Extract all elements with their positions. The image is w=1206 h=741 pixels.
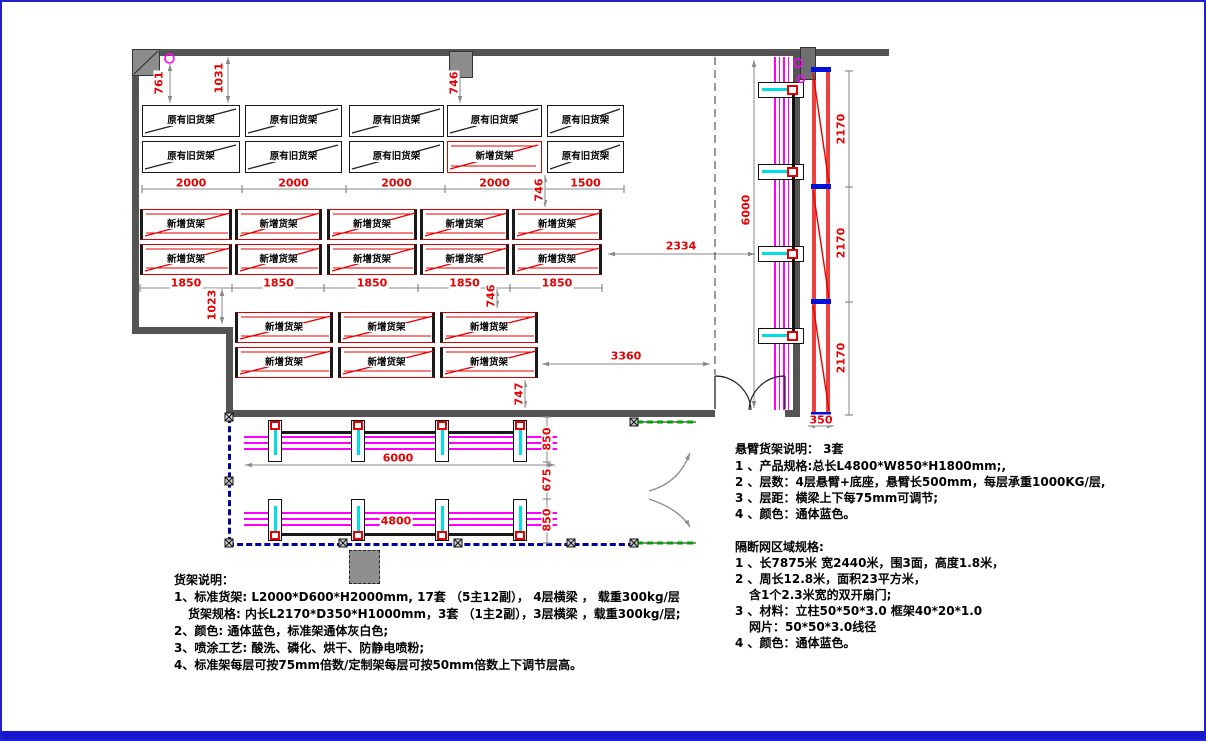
- rack-cell-label: 原有旧货架: [269, 116, 319, 126]
- dim-label: 761: [154, 71, 165, 96]
- post-cyan-line: [357, 506, 360, 532]
- dim-label: 746: [486, 284, 497, 309]
- dim-label: 2000: [175, 178, 208, 189]
- dim-label: 2170: [836, 227, 847, 260]
- cantilever-beam: [275, 533, 520, 536]
- rack-cell-label: 原有旧货架: [372, 152, 422, 162]
- side-rack-cap: [811, 184, 831, 189]
- rack-cell-label: 原有旧货架: [470, 116, 520, 126]
- rack-cell: 新增货架: [235, 209, 322, 240]
- bracket-post-square: [787, 331, 798, 341]
- rack-cell: 原有旧货架: [547, 141, 624, 173]
- wall: [132, 49, 889, 56]
- bracket-cyan-line: [762, 88, 789, 91]
- dim-label: 1850: [356, 278, 389, 289]
- post-cyan-line: [274, 427, 277, 455]
- rack-cell-label: 新增货架: [537, 220, 577, 230]
- post-red-square: [515, 531, 525, 540]
- dim-label: 850: [542, 508, 553, 533]
- rack-cell: 原有旧货架: [245, 105, 342, 137]
- post-cyan-line: [441, 506, 444, 532]
- dim-label: 2000: [478, 178, 511, 189]
- side-rack-band: [812, 69, 816, 417]
- dim-label: 1031: [214, 62, 225, 95]
- rack-cell-label: 新增货架: [474, 152, 514, 162]
- dim-label: 746: [534, 178, 545, 203]
- rack-cell: 新增货架: [338, 312, 435, 343]
- dim-label: 3360: [610, 351, 643, 362]
- frame-bottom-bar: [2, 731, 1204, 739]
- note-title: 悬臂货架说明： 3套: [735, 442, 844, 456]
- rack-cell-label: 新增货架: [352, 220, 392, 230]
- note-title: 货架说明：: [174, 573, 234, 587]
- rack-cell-label: 新增货架: [366, 358, 406, 368]
- rack-cell: 新增货架: [440, 312, 538, 343]
- rack-cell: 原有旧货架: [142, 141, 240, 173]
- rack-cell: 新增货架: [235, 244, 322, 275]
- bracket-post-square: [787, 85, 798, 95]
- rack-cell-label: 新增货架: [537, 255, 577, 265]
- note-line: 3 、材料：立柱50*50*3.0 框架40*20*1.0: [735, 604, 982, 618]
- dim-label: 6000: [741, 194, 752, 227]
- dim-label: 1850: [541, 278, 574, 289]
- note-line: 4 、颜色：通体蓝色。: [735, 636, 856, 650]
- post-cyan-line: [441, 427, 444, 455]
- wall: [226, 327, 233, 417]
- fence-line-left: [228, 417, 231, 543]
- rack-cell-label: 原有旧货架: [561, 152, 611, 162]
- rack-cell-label: 原有旧货架: [269, 152, 319, 162]
- rack-cell: 原有旧货架: [349, 141, 444, 173]
- cantilever-arm-line: [788, 57, 790, 410]
- note-line: 4 、颜色：通体蓝色。: [735, 507, 856, 521]
- rack-cell-label: 新增货架: [264, 358, 304, 368]
- side-rack-cap: [811, 67, 831, 72]
- post-red-square: [515, 421, 525, 430]
- post-red-square: [353, 421, 363, 430]
- dim-label: 4800: [380, 516, 413, 527]
- post-cyan-line: [519, 427, 522, 455]
- cantilever-beam: [275, 431, 520, 434]
- dim-label: 2000: [380, 178, 413, 189]
- note-line: 货架规格: 内长L2170*D350*H1000mm，3套 （1主2副），3层横…: [188, 607, 681, 621]
- rack-cell: 原有旧货架: [547, 105, 624, 137]
- cantilever-arm-line: [774, 57, 776, 410]
- rack-cell: 原有旧货架: [142, 105, 240, 137]
- fence-post: [630, 418, 638, 426]
- rack-cell-label: 新增货架: [258, 255, 298, 265]
- rack-cell-label: 新增货架: [469, 358, 509, 368]
- note-line: 2 、周长12.8米，面积23平方米，: [735, 572, 926, 586]
- bracket-cyan-line: [762, 170, 789, 173]
- post-red-square: [353, 531, 363, 540]
- swing-arrow: [649, 499, 690, 527]
- rack-cell: 新增货架: [235, 347, 333, 378]
- post-red-square: [270, 531, 280, 540]
- dim-label: 1500: [569, 178, 602, 189]
- dim-label: 675: [542, 468, 553, 493]
- rack-cell: 原有旧货架: [349, 105, 444, 137]
- rack-cell: 原有旧货架: [447, 105, 542, 137]
- door-arc: [715, 376, 751, 410]
- rack-cell-label: 新增货架: [166, 255, 206, 265]
- note-line: 网片：50*50*3.0线径: [749, 620, 876, 634]
- note-line: 1 、产品规格:总长L4800*W850*H1800mm;,: [735, 459, 1006, 473]
- bracket-cyan-line: [762, 334, 789, 337]
- note-line: 3 、层距：横梁上下每75mm可调节;: [735, 491, 938, 505]
- rack-cell: 新增货架: [235, 312, 333, 343]
- rack-cell-label: 原有旧货架: [166, 152, 216, 162]
- dim-label: 2000: [277, 178, 310, 189]
- note-line: 3、喷涂工艺: 酸洗、磷化、烘干、防静电喷粉;: [174, 641, 424, 655]
- dim-label: 1850: [262, 278, 295, 289]
- rack-cell-label: 新增货架: [444, 255, 484, 265]
- wall: [132, 49, 139, 333]
- note-line: 1 、长7875米 宽2440米，围3面，高度1.8米，: [735, 556, 1004, 570]
- rack-cell: 新增货架: [420, 209, 509, 240]
- dim-label: 1023: [207, 289, 218, 322]
- note-line: 2、颜色: 通体蓝色，标准架通体灰白色;: [174, 624, 388, 638]
- cantilever-arm-line: [779, 57, 781, 410]
- wall: [132, 327, 232, 334]
- cantilever-arm-line: [783, 57, 785, 410]
- note-line: 2 、层数：4层悬臂+底座，悬臂长500mm，每层承重1000KG/层,: [735, 475, 1105, 489]
- rack-cell-label: 新增货架: [444, 220, 484, 230]
- post-cyan-line: [357, 427, 360, 455]
- dim-label: 2334: [665, 241, 698, 252]
- dim-label: 2170: [836, 113, 847, 146]
- fence-line-bottom: [228, 543, 634, 546]
- rack-cell-label: 新增货架: [258, 220, 298, 230]
- post-cyan-line: [274, 506, 277, 532]
- swing-arrow: [649, 453, 690, 491]
- post-red-square: [437, 421, 447, 430]
- rack-cell-label: 新增货架: [264, 323, 304, 333]
- rack-cell-label: 原有旧货架: [166, 116, 216, 126]
- side-rack-cap: [811, 299, 831, 304]
- rack-cell: 新增货架: [140, 209, 232, 240]
- dim-label: 1850: [170, 278, 203, 289]
- rack-cell: 新增货架: [420, 244, 509, 275]
- cantilever-rail: [244, 436, 557, 438]
- rack-cell-label: 新增货架: [469, 323, 509, 333]
- dim-label: 747: [514, 382, 525, 407]
- rack-cell: 新增货架: [440, 347, 538, 378]
- cantilever-rail: [244, 448, 557, 450]
- rack-cell: 新增货架: [140, 244, 232, 275]
- bracket-cyan-line: [762, 252, 789, 255]
- rack-cell-label: 新增货架: [166, 220, 206, 230]
- note-line: 4、标准架每层可按75mm倍数/定制架每层可按50mm倍数上下调节层高。: [174, 658, 582, 672]
- floor-plan-canvas: 原有旧货架原有旧货架原有旧货架原有旧货架原有旧货架原有旧货架原有旧货架原有旧货架…: [0, 0, 1206, 741]
- rack-cell: 新增货架: [447, 141, 542, 173]
- rack-cell: 新增货架: [512, 244, 602, 275]
- note-title: 隔断网区域规格:: [735, 540, 824, 554]
- rack-cell-label: 原有旧货架: [561, 116, 611, 126]
- post-red-square: [270, 421, 280, 430]
- dim-label: 1850: [448, 278, 481, 289]
- column: [800, 47, 816, 80]
- wall: [226, 410, 715, 417]
- note-line: 1、标准货架: L2000*D600*H2000mm, 17套 （5主12副），…: [174, 590, 680, 604]
- dim-label: 350: [809, 415, 834, 426]
- rack-cell-label: 新增货架: [366, 323, 406, 333]
- side-rack-band: [826, 69, 830, 417]
- dim-label: 2170: [836, 342, 847, 375]
- post-red-square: [437, 531, 447, 540]
- dim-label: 6000: [382, 453, 415, 464]
- rack-cell-label: 原有旧货架: [372, 116, 422, 126]
- rack-cell: 新增货架: [327, 209, 417, 240]
- rack-cell: 原有旧货架: [245, 141, 342, 173]
- equipment-box: [349, 550, 380, 584]
- rack-cell: 新增货架: [512, 209, 602, 240]
- post-cyan-line: [519, 506, 522, 532]
- dim-label: 746: [449, 71, 460, 96]
- rack-cell: 新增货架: [338, 347, 435, 378]
- bracket-beam-line: [792, 90, 795, 336]
- rack-cell: 新增货架: [327, 244, 417, 275]
- dim-label: 850: [542, 427, 553, 452]
- bracket-post-square: [787, 167, 798, 177]
- bracket-post-square: [787, 249, 798, 259]
- rack-cell-label: 新增货架: [352, 255, 392, 265]
- note-line: 含1个2.3米宽的双开扇门;: [749, 588, 891, 602]
- cantilever-rail: [244, 442, 557, 444]
